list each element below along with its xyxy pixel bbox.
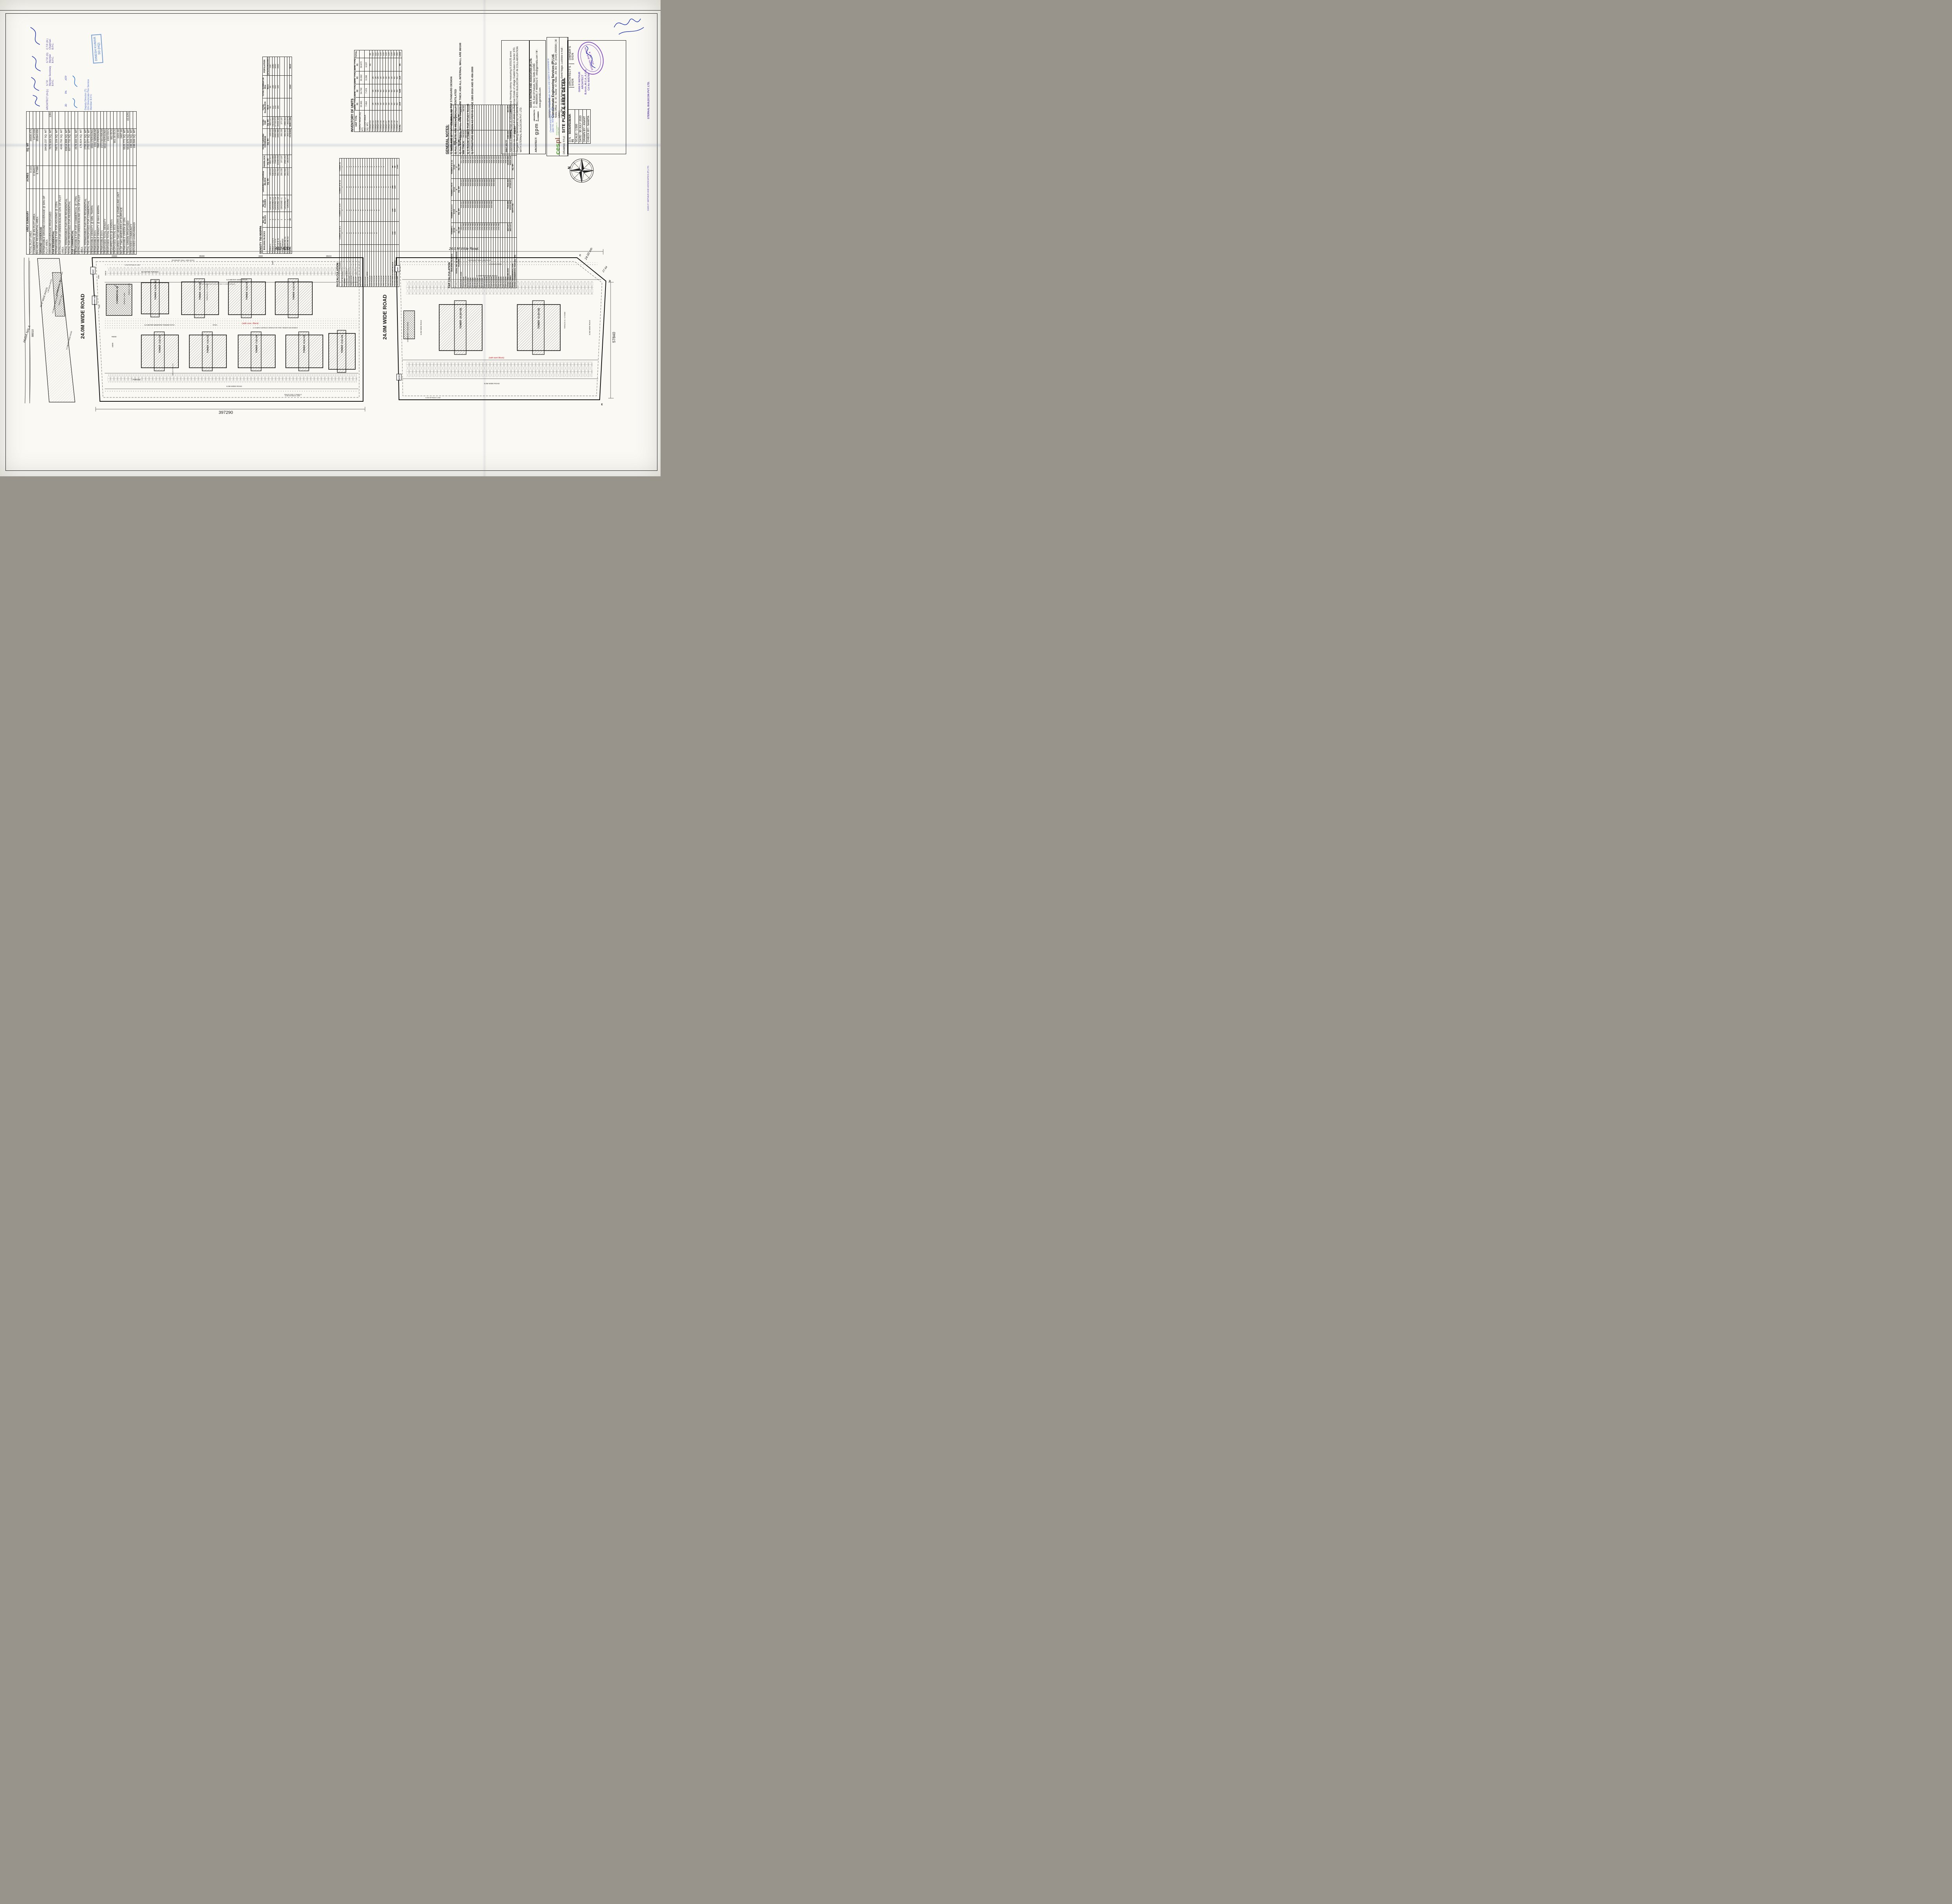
table-row: PERMISSIBLE DU's 1573 MAXIMUM xyxy=(100,112,103,255)
row-label: TOTAL FAR PROPOSED FOR COMMERCIAL xyxy=(87,189,91,254)
company-office1: Noida Office : B - 67, Sector - 67, Noid… xyxy=(555,66,557,118)
table-row: TOTAL GREEN PROPOSED 5533.875 SQ. MT 15.… xyxy=(126,112,130,255)
tower-8: TOWER -8 (G+14) xyxy=(286,332,323,371)
table-row: PERMISSIBLE DENSITY @ MIN. 750PPA 6554 P… xyxy=(91,112,94,255)
hw-tank-block: (with tank Block) xyxy=(489,357,504,359)
table-row: EXTRA FAR FOR GREEN BUILING 12% OF PLOT … xyxy=(78,112,84,255)
tower-5-label: TOWER -5 (G+14) xyxy=(246,281,248,300)
lt-label: SPACE FOR LT PANELS xyxy=(284,394,302,395)
stamp-ctp-h: C.T.P. (H.) Chairman B.P.C. xyxy=(46,39,54,50)
owners-sign-label: OWNER'S SIGN xyxy=(569,41,574,60)
dim-top: 417420 xyxy=(275,246,290,251)
tower-10-label: TOWER -10 (G+19) xyxy=(460,308,462,329)
hw-27-64: 27.64 xyxy=(602,266,608,273)
sign-block: D.N. - SG/AH/SUB/AR-01 SCALE:- 1:500 DAT… xyxy=(568,40,626,154)
right-parcel-boundary xyxy=(396,258,606,400)
table-row: FAR COMMERCIAL xyxy=(71,112,75,255)
tower-9-label: TOWER -9 (G+14) xyxy=(341,335,344,353)
scale: SCALE:- 1:500 xyxy=(575,110,579,144)
scooter-parking-label: SCOOTER PARKING xyxy=(141,271,159,273)
tower-11-label: TOWER -11 (G+19) xyxy=(538,308,540,329)
terrace-18450: TERRACE +18450 xyxy=(128,283,130,295)
commercial-01-label: COMMERCIAL 01 xyxy=(116,286,119,304)
approval-stamps-block: ARCHITECT (H.Q.) S.T.P. Member Secretary… xyxy=(26,34,119,110)
table-row: REQUIRED ECS @ 0.5XDU's 661 ECS xyxy=(110,112,113,255)
table-row: PROVIDED AANGANWADI 188.599 SQ. MT xyxy=(133,112,136,255)
drawing-sheet: ARCHITECT (H.Q.) S.T.P. Member Secretary… xyxy=(0,0,661,476)
dim-13000: 13000 xyxy=(366,271,368,276)
row-label: GROUND COVERAGE xyxy=(39,189,43,254)
road-24-mid: 24.0M WIDE ROAD xyxy=(382,294,388,340)
hw-road24: 24.0 M Wide Road. xyxy=(449,247,479,251)
tower-11: TOWER -11 (G+19) TERRACE LVL +44700MM xyxy=(517,301,566,354)
inventory-table: INVENTORY OF UNITS UNIT TYPE 2BHK TYPE 0… xyxy=(351,50,435,132)
right-parking-top xyxy=(406,281,593,294)
margin-owner-stamp: STERNAL BUILDCON PVT. LTD. xyxy=(647,37,653,119)
drawing-title-block: DRAWING TITLE : SITE PLAN & AREA DETAIL xyxy=(559,37,568,156)
stamp-stp-g: S.T.P. (G) Member B.P.C. xyxy=(46,53,54,63)
table-row: PERMISSIBLE GREEN @ 15% 5525.771 SQ. MT xyxy=(123,112,126,255)
row-label: TOTAL PERMISSIBLE FAR FOR RESIDENTIAL xyxy=(65,189,68,254)
tower-3: TOWER -3 (G+13) xyxy=(189,332,226,371)
row-label: GROUND COVERAGE PROPOSED xyxy=(49,189,52,254)
stamp-fire-service: Deputy Director (T) O/o Directorate Fire… xyxy=(84,79,93,110)
check-by: CHECK BY:- NAMITA xyxy=(587,110,591,144)
stamp-jd: JD xyxy=(65,104,68,107)
project-block: PROJECT: Approval of Building Plan of Af… xyxy=(501,40,529,154)
row-label: COMMERCIAL @ 4% PLOT AREA xyxy=(33,189,36,254)
community-label: COMMUNITY BUILDING xyxy=(407,322,409,342)
table-row: EXTRA FAR FOR GREEN BUILING 12% OF PLOT … xyxy=(59,112,65,255)
signature-squiggles xyxy=(24,17,48,110)
table-row: BALANCE RESIDENTIAL AREA 8.7388 35364.93… xyxy=(36,112,39,255)
stamp-architect-hq: ARCHITECT (H.Q.) xyxy=(46,89,54,110)
col-sqmt: SQ. MT xyxy=(27,128,30,166)
paper-edge-line xyxy=(0,10,661,11)
exit-gate-label: EXIT xyxy=(92,269,94,273)
stamp-atp: ATP xyxy=(65,76,68,80)
owner-stamp: STERNAL BUILDCON PVT. LTD. ★ xyxy=(578,41,603,75)
owner-signature xyxy=(578,41,603,75)
architect-phone: T : 46599599 | F 46599512 xyxy=(536,80,538,108)
area-summary-table: AREA SUMMARY ACRES SQ. MT TOTAL PLOT ARE… xyxy=(26,111,264,255)
date: 30 JULY 2020 xyxy=(579,116,582,133)
main-gates: EXIT ENTRY/ EXIT 6500 7000 xyxy=(91,267,100,308)
green-15b: 1.5 M WIDE GREEN xyxy=(488,264,502,265)
dim-3000: 3000 xyxy=(258,255,263,258)
point-E: E xyxy=(601,404,603,406)
terrace-13950: TERRACE +13950 xyxy=(124,293,125,305)
architect-address: C - 55, East Of Kailash, New Delhi-11006… xyxy=(533,64,536,108)
note-4: 4) S ROOM STANDS FOR STUDY ROOM xyxy=(467,40,470,154)
parking-label: PARKING xyxy=(133,379,141,381)
row-label: FAR RESIDENTIAL xyxy=(52,189,55,254)
table-row: TOTAL FAR PROPOSED FOR RESIDENTIAL 83777… xyxy=(68,112,71,255)
tower-3-label: TOWER -3 (G+13) xyxy=(207,335,209,353)
table-row: CARPET AREA (SQ. MT) 53.961 54.742 55.56… xyxy=(359,50,364,132)
hard-green-label: 4.0 HARD SURFACE GREEN FOR FIRE TENDER M… xyxy=(253,327,298,329)
table-row: TOTAL 14 7079.609 86907.006 1322 6610 xyxy=(289,57,292,254)
row-label: PERMISSIBLE FAR FOR COMMERCIAL @ 175% xyxy=(75,189,78,254)
row-label: PROPOSED TOTAL ECS xyxy=(114,189,117,254)
row-label: REQUIRED TWO WHEELERS @ 1/DWELLING UNIT xyxy=(117,189,120,254)
path-label: PATH xyxy=(213,324,217,326)
right-road-6m: 6.0 METER WIDE ROAD xyxy=(476,275,497,277)
area-summary: AREA SUMMARY ACRES SQ. MT TOTAL PLOT ARE… xyxy=(26,111,137,255)
table-row: REQUIRED TWO WHEELERS @ 1/DWELLING UNIT … xyxy=(117,112,120,255)
hw-conc-block: (with conc. Block) xyxy=(242,322,258,325)
row-label: PROPOSED TOTAL DU's xyxy=(107,189,110,254)
hw-mtr24: 24.00 mtr. xyxy=(584,246,593,261)
right-exit-label: EXIT xyxy=(397,267,399,271)
bwall-top: BOUNDARY WALL 1830 HEIGH xyxy=(172,259,194,261)
green-strip-bottom xyxy=(105,390,358,392)
table-row: TOTAL PERMISSIBLE FAR FOR RESIDENTIAL 27… xyxy=(84,112,87,255)
table-row: PROPOSED TOTAL ECS 661.00 ECS xyxy=(114,112,117,255)
stamp-pa: PA xyxy=(65,91,68,94)
area-summary-title: AREA SUMMARY xyxy=(27,189,30,254)
dim-right: 57840 xyxy=(612,332,616,343)
margin-architect-stamp: GIAN P. MATHUR AND ASSOCIATES (P) LTD. xyxy=(647,129,653,211)
table-row: COMMUNITY /AANGANWADI 1 GROUND +1 206.23… xyxy=(280,57,285,254)
pergola-label: PERGOLA/PROJECTION ON 2ND FLOOR/TERRACE xyxy=(199,283,235,285)
row-label: TOTAL FAR PROPOSED FOR RESIDENTIAL xyxy=(68,189,71,254)
row-label: REQUIRED ECS @ 0.5XDU's xyxy=(110,189,113,254)
tower-2-label: TOWER -2 (G+13) xyxy=(159,335,161,353)
handwritten-marks-top-right xyxy=(611,12,654,39)
table-row: TOWER 02 28 56 28 112 xyxy=(372,50,375,132)
note-2: 2) ALL TOILETS ARE MECHANICALLY VENTILAT… xyxy=(454,40,458,154)
density-title: DENSITY 750-900PPA xyxy=(260,57,262,254)
architect-block: ARCHITECT: gpm ARCHITECTS & PLANNERS GIA… xyxy=(529,40,546,154)
tower-1: TOWER 1 (G/S+16) xyxy=(141,280,169,317)
right-entry-label: ENTRY xyxy=(398,374,400,380)
right-road-6: 6.0M WIDE ROAD xyxy=(484,383,500,385)
density-blocks-table: DENSITY 750-900PPA BUILDING BLOCKS NO. O… xyxy=(260,57,329,254)
right-road-6-right: 6.0M WIDE ROAD xyxy=(589,320,591,335)
row-label: PERMISSIBLE DENSITY @ MAX 900PPA xyxy=(97,189,100,254)
row-label: EXTRA FAR FOR GREEN BUILING 12% OF PLOT … xyxy=(78,189,84,254)
row-label: PERMISSIBLE DENSITY @ MIN. 750PPA xyxy=(91,189,94,254)
row-label: TOTAL PERMISSIBLE FAR FOR RESIDENTIAL xyxy=(84,189,87,254)
site-plan: 417420 397290 57840 88010 HUDA NALA 16'-… xyxy=(16,245,640,420)
table-row: PERMISSIBLE FAR FOR COMMERCIAL @ 175% 25… xyxy=(75,112,78,255)
cespl-tagline: Working Together To Create Value xyxy=(556,120,559,135)
table-row: TOTAL FAR PROPOSED FOR COMMERCIAL 2752.0… xyxy=(87,112,91,255)
tower-7-label: TOWER -7 (G+14) xyxy=(256,335,258,353)
north-compass: N xyxy=(566,155,596,186)
community-building-block xyxy=(404,311,415,339)
green-strip-top xyxy=(105,263,358,266)
general-notes-title: GENERAL NOTES: xyxy=(445,40,449,154)
right-road-6-left: 6.0M WIDE ROAD xyxy=(420,320,422,335)
architect-firm: GIAN P. MATHUR AND ASSOCIATES (P) LTD. xyxy=(530,58,533,107)
table-row: TOTAL 314 628 314 66 1322 xyxy=(399,50,402,132)
row-label: TOTAL GREEN PROPOSED xyxy=(126,189,130,254)
tower-6: TOWER -6 (G+14) xyxy=(275,279,312,318)
tower-7: TOWER -7 (G+14) xyxy=(238,332,275,371)
setback-right-parcel: 6.0M SETBACK LINE xyxy=(426,397,441,399)
architects-sign-label: ARCHITECT'S SIGN xyxy=(569,64,574,87)
row-label: PERMISSIBLE DU's xyxy=(94,189,97,254)
note-3: 3) ALL EXTERNAL WALL ARE 150/200 MM THIC… xyxy=(459,40,466,154)
scooter-parking-bottom xyxy=(107,374,357,383)
table-row: PERMISSIBLE DU's 1311 MINIMUM xyxy=(94,112,97,255)
project-text: Approval of Building Plan of Affordable … xyxy=(509,42,523,152)
table-row: PERMISSIBLE DENSITY @ MAX 900PPA 7865 PE… xyxy=(97,112,100,255)
row-label: PERMISSIBLE GROUND COVERAGE @ 50% OF PLO… xyxy=(43,189,49,254)
row-label: PERMISSIBLE DU's xyxy=(100,189,103,254)
row-label: BALANCE RESIDENTIAL AREA xyxy=(36,189,39,254)
date-label: DATE:- xyxy=(579,134,582,142)
table-row: TOTAL PLOT AREA 9.103 36838.475 xyxy=(30,112,33,255)
table-row: FAR RESIDENTIAL xyxy=(52,112,55,255)
gpm-logo-sub: ARCHITECTS & PLANNERS xyxy=(533,110,539,121)
road-6-bottom: 6.0M WIDE ROAD xyxy=(226,385,242,388)
entry-exit-gate-label: ENTRY/ EXIT xyxy=(94,294,96,305)
row-label: PROVIDED COMMUNITY xyxy=(130,189,133,254)
stamp-stp: S.T.P. Member Secretary B.P.C. xyxy=(46,66,54,86)
row-label: PROVIDED AANGANWADI xyxy=(133,189,136,254)
tower-8-label: TOWER -8 (G+14) xyxy=(303,335,306,353)
road-24-left: 24.0M WIDE ROAD xyxy=(80,294,85,339)
row-label: PERMISSIBLE FAR FOR HOUSING @ 225% xyxy=(55,189,59,254)
tower-6-label: TOWER -6 (G+14) xyxy=(293,281,295,300)
table-row: PERMISSIBLE FAR FOR HOUSING @ 225% 79571… xyxy=(55,112,59,255)
table-row: PERMISSIBLE GROUND COVERAGE @ 50% OF PLO… xyxy=(43,112,49,255)
bwall-right: BOUNDARY WALL 1830 HEIGH xyxy=(468,259,491,261)
table-row: PROVIDED COMMUNITY 188.599 SQ. MT xyxy=(130,112,133,255)
gpm-logo: gpm xyxy=(533,123,539,135)
tower-10: TOWER -10 (G+19) xyxy=(439,301,482,354)
stamp-dinesh-kumar: DINESH KUMAR SD (HQ) xyxy=(91,34,103,64)
col-acres: ACRES xyxy=(27,166,30,189)
drawn-by: ANANT xyxy=(583,116,586,125)
general-notes: GENERAL NOTES: 1) GATE AND BOUNDARY WALL… xyxy=(445,40,500,154)
row-label: PROPOSED TOTAL DENSITY xyxy=(104,189,107,254)
dim-35310: 35310 xyxy=(326,255,331,258)
table-row: PROPOSED TOTAL DU's 1322 DU's xyxy=(107,112,110,255)
dim-7000: 7000 xyxy=(98,305,100,308)
north-label: N xyxy=(567,167,571,169)
dn-label: D.N. - xyxy=(569,135,572,142)
dn-table: D.N. - SG/AH/SUB/AR-01 SCALE:- 1:500 DAT… xyxy=(568,109,591,144)
architect-label: ARCHITECT: xyxy=(535,137,538,152)
right-parking-bottom xyxy=(406,362,593,377)
dim-35300: 35300 xyxy=(199,255,205,258)
point-D: D xyxy=(609,280,611,283)
dim-16000: 16000 xyxy=(112,342,114,347)
dim-6000: 6000 xyxy=(272,261,274,265)
project-label: PROJECT: xyxy=(506,140,508,152)
dim-left: 88010 xyxy=(32,329,34,337)
road-6m-top: 6.0 METER WIDE ROAD xyxy=(226,279,248,281)
drawing-title: SITE PLAN & AREA DETAIL xyxy=(562,77,566,133)
fire-tender-green-band xyxy=(105,319,358,330)
table-row: GROUND COVERAGE xyxy=(39,112,43,255)
row-label: NO OF TWO WHEELERS AT SURFACE xyxy=(120,189,123,254)
row-label: TOTAL PLOT AREA xyxy=(30,189,33,254)
initial-stamps-row: JD PA ATP xyxy=(65,76,68,107)
dim-15615: 15615 xyxy=(105,271,107,276)
drawing-title-label: DRAWING TITLE : xyxy=(563,135,566,154)
fire-path-label: 6.0 METER WIDEFIRE TENDER PATH xyxy=(144,324,175,326)
table-row: COMMERCIAL @ 4% PLOT AREA 0.36412 1473.5… xyxy=(33,112,36,255)
dg-label: SPACE FOR D.G xyxy=(172,363,174,376)
dim-bottom: 397290 xyxy=(219,410,233,415)
tower-1-label: TOWER 1 (G/S+16) xyxy=(155,280,157,300)
table-row: NO OF TWO WHEELERS AT SURFACE 2497.00 xyxy=(120,112,123,255)
bpc-stamps-row: ARCHITECT (H.Q.) S.T.P. Member Secretary… xyxy=(46,39,54,110)
row-label: PERMISSIBLE GREEN @ 15% xyxy=(123,189,126,254)
dim-22000: 22000 xyxy=(112,255,117,258)
inventory-title: INVENTORY OF UNITS xyxy=(351,50,354,132)
note-1: 1) GATE AND BOUNDARY WALL AS PER STANDAR… xyxy=(450,40,453,154)
setback-top: 6.0M SETBACK LINE xyxy=(125,264,140,266)
row-label: FAR COMMERCIAL xyxy=(71,189,75,254)
initial-squiggles xyxy=(69,48,80,110)
tower-9: TOWER -9 (G+14) xyxy=(329,330,355,372)
point-C: C xyxy=(579,255,581,257)
terrace-lvl-b: TERRACE LVL +44700MM xyxy=(564,312,566,329)
note-5: 5) STRUCTURE DESIGN AS PER IS CODE 1893-… xyxy=(471,40,474,154)
table-row: TOTAL PERMISSIBLE FAR FOR RESIDENTIAL 83… xyxy=(65,112,68,255)
drawn-label: DRAWN BY:- xyxy=(583,126,586,142)
dim-6500: 6500 xyxy=(98,275,100,279)
table-row: GROUND COVERAGE PROPOSED 7079.609 SQ. MT… xyxy=(49,112,52,255)
row-label: EXTRA FAR FOR GREEN BUILING 12% OF PLOT … xyxy=(59,189,65,254)
table-row: PROPOSED TOTAL DENSITY 6610 PERSONS xyxy=(104,112,107,255)
dim-r6000: R6000 xyxy=(112,336,117,338)
table-row: BALCONY AREA (SQ. MT) 7.464 7.474 8.296 … xyxy=(364,50,369,132)
terrace-lvl-a: TERRACE LVL +41750MM xyxy=(207,284,208,301)
